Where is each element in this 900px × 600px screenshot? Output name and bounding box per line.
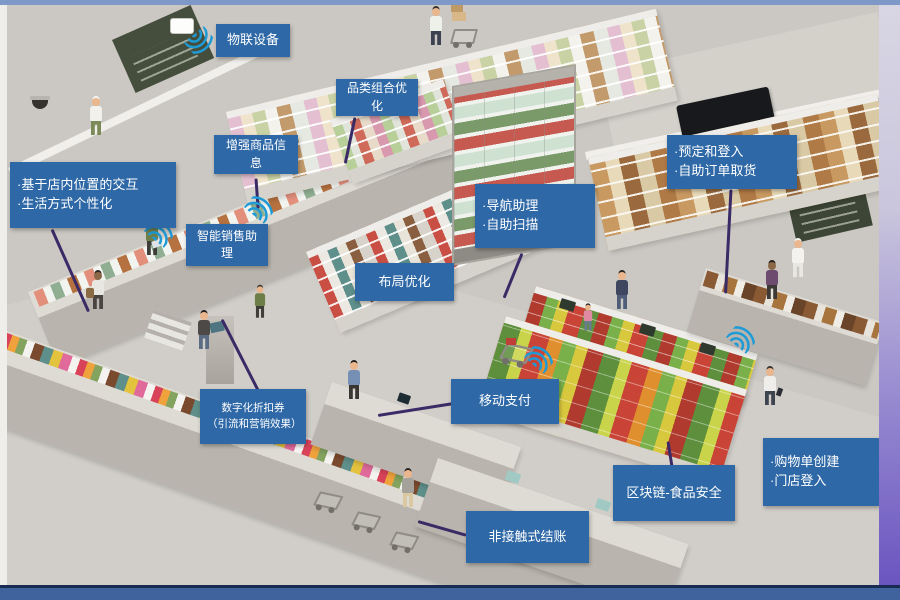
callout-iot-devices: 物联设备 xyxy=(216,24,290,57)
shopping-trolley xyxy=(448,28,478,48)
person-stocking-staff xyxy=(430,16,442,32)
slide-right-strip xyxy=(879,5,900,585)
person-mother xyxy=(616,280,628,296)
callout-mobile-payment: 移动支付 xyxy=(451,379,559,424)
person-cashier xyxy=(348,370,360,386)
callout-digital-coupons: 数字化折扣券 （引流和营销效果） xyxy=(200,389,306,444)
person-shelf-staff xyxy=(255,293,265,307)
person-shopper-purple xyxy=(766,270,778,286)
cart-item xyxy=(506,338,516,345)
callout-navigation-assistant: ·导航助理 ·自助扫描 xyxy=(475,184,595,248)
callout-contactless-checkout: 非接触式结账 xyxy=(466,511,589,563)
slide-left-strip xyxy=(0,5,7,585)
person-walking-shopper xyxy=(402,478,414,494)
slide-bottom-bar xyxy=(0,585,900,600)
person-child xyxy=(584,310,592,321)
iot-wall-sensor xyxy=(170,18,194,34)
hot-food-display xyxy=(703,270,882,339)
callout-blockchain-food-safety: 区块链-食品安全 xyxy=(613,465,735,521)
shoulder-bag xyxy=(86,288,94,298)
slide-top-bar xyxy=(0,0,900,5)
security-camera-icon xyxy=(32,100,48,109)
person-deli-staff xyxy=(90,106,102,122)
callout-reservation-login-pickup: ·预定和登入 ·自助订单取货 xyxy=(667,135,797,189)
callout-category-mix-optimization: 品类组合优化 xyxy=(336,79,418,116)
person-kiosk-shopper xyxy=(198,320,210,336)
callout-shopping-list-store-login: ·购物单创建 ·门店登入 xyxy=(763,438,880,506)
callout-enhanced-product-info: 增强商品信息 xyxy=(214,135,298,174)
callout-smart-sales-assistant: 智能销售助理 xyxy=(186,224,268,266)
callout-layout-optimization: 布局优化 xyxy=(355,263,454,301)
person-shopper-with-phone xyxy=(764,376,776,392)
trolley-box xyxy=(451,4,463,12)
callout-in-store-location-interaction: ·基于店内位置的交互 ·生活方式个性化 xyxy=(10,162,176,228)
trolley-box xyxy=(452,12,466,21)
smart-retail-store-diagram: 物联设备 品类组合优化 增强商品信息 ·基于店内位置的交互 ·生活方式个性化 智… xyxy=(0,0,900,600)
person-chef xyxy=(792,248,804,264)
